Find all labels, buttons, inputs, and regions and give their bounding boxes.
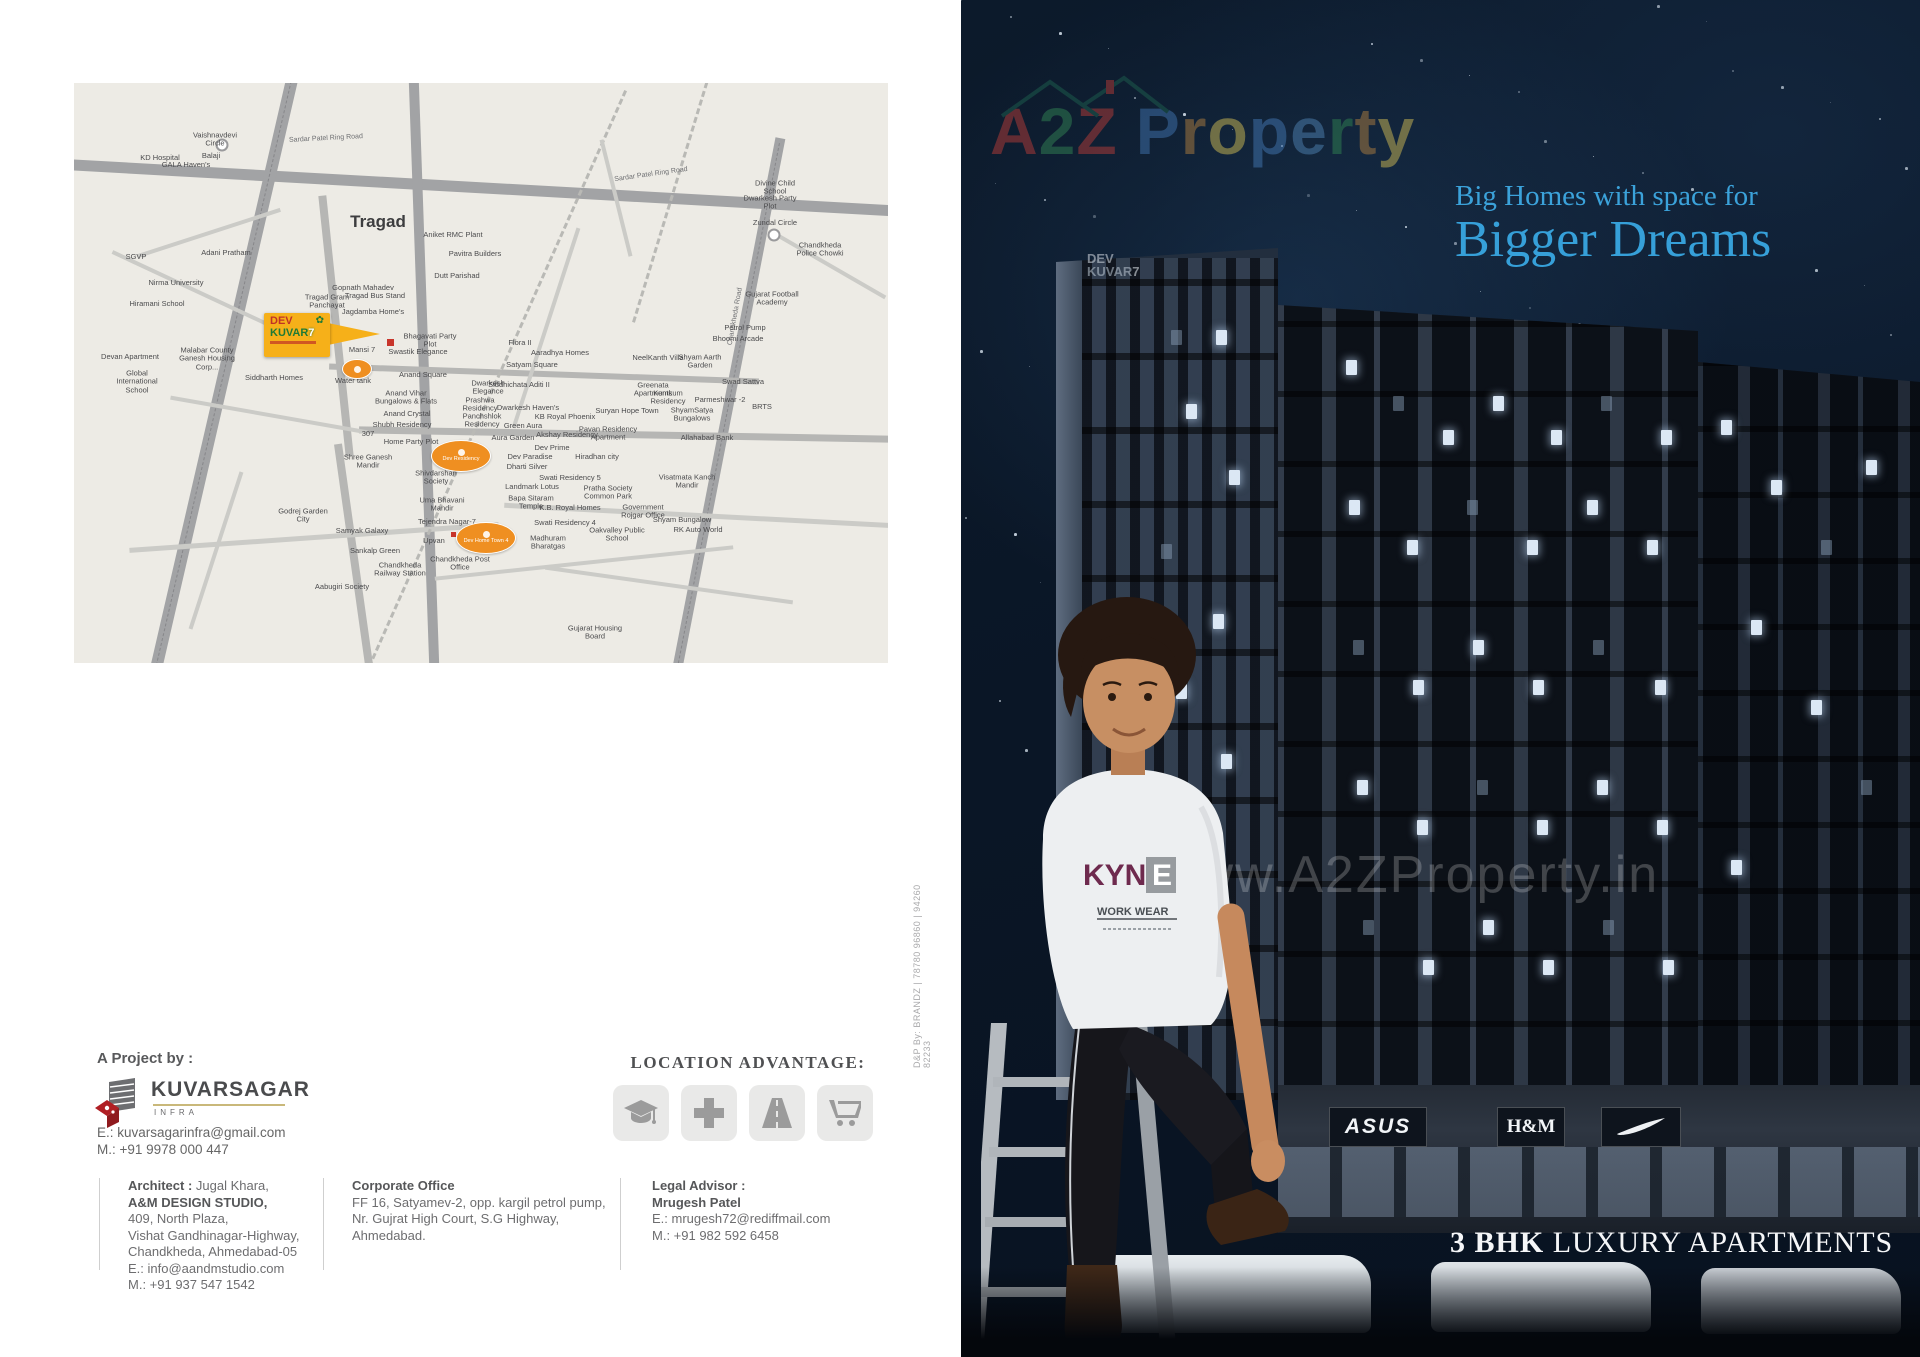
map-label: Aabugiri Society [315, 583, 369, 591]
star [1732, 70, 1734, 72]
a2z-property-logo: A2Z Property [990, 98, 1415, 164]
butterfly-icon: ✿ [316, 315, 324, 326]
map-label: Bhoomi Arcade [713, 335, 764, 343]
map-label: Aniket RMC Plant [423, 231, 482, 239]
map-label: RK Auto World [673, 526, 722, 534]
lit-window [1413, 680, 1424, 695]
lit-window [1603, 920, 1614, 935]
lit-window [1721, 420, 1732, 435]
map-label: Kumkum Residency [636, 390, 700, 407]
star [1029, 366, 1030, 367]
lit-window [1543, 960, 1554, 975]
map-label: Parmeshwar -2 [695, 396, 746, 404]
lit-window [1353, 640, 1364, 655]
lit-window [1597, 780, 1608, 795]
roof-icon [998, 72, 1218, 118]
star [1815, 269, 1818, 272]
brochure: Tragad Sardar Patel Ring Road Sardar Pat… [0, 0, 1920, 1357]
star [1093, 215, 1096, 218]
map-label: Vaishnavdevi Circle [183, 132, 247, 149]
lit-window [1537, 820, 1548, 835]
lit-window [1349, 500, 1360, 515]
apartment-tower-right [1278, 305, 1698, 1097]
svg-text:E: E [1152, 859, 1172, 892]
map-label: Hiradhan city [575, 453, 619, 461]
map-project-badge: Dev Residency [431, 440, 491, 472]
developer-brand: KUVARSAGAR INFRA [95, 1078, 310, 1128]
star [1529, 307, 1531, 309]
star [1307, 194, 1310, 197]
map-road [170, 396, 368, 435]
map-label: Visatmata Kanch Mandir [655, 474, 719, 491]
map-label: Gujarat Football Academy [740, 291, 804, 308]
location-advantage-title: LOCATION ADVANTAGE: [631, 1053, 866, 1073]
map-area-label: Tragad [350, 212, 406, 232]
lit-window [1346, 360, 1357, 375]
star [1469, 75, 1470, 76]
star [1420, 59, 1423, 62]
lit-window [1443, 430, 1454, 445]
kuvarsagar-logo-icon [95, 1078, 141, 1128]
star [1044, 199, 1046, 201]
hm-sign: H&M [1497, 1107, 1565, 1147]
brand-name: KUVARSAGAR [151, 1078, 310, 1102]
lit-window [1655, 680, 1666, 695]
project-by-heading: A Project by : [97, 1050, 193, 1067]
svg-text:KYN: KYN [1083, 859, 1146, 892]
lit-window [1216, 330, 1227, 345]
lit-window [1751, 620, 1762, 635]
apartment-type-line: 3 BHK LUXURY APARTMENTS [1450, 1226, 1893, 1260]
lit-window [1811, 700, 1822, 715]
lit-window [1161, 544, 1172, 559]
divider [99, 1178, 100, 1270]
tagline-line1: Big Homes with space for [1455, 180, 1758, 213]
map-label: Satyam Square [506, 361, 558, 369]
map-label: Adani Pratham [201, 249, 251, 257]
star [995, 183, 996, 184]
brand-subtitle: INFRA [154, 1108, 310, 1117]
star [1544, 140, 1547, 143]
map-label: Suryan Hope Town [595, 407, 658, 415]
map-label: Mansi 7 [349, 346, 375, 354]
map-label: Anand Square [399, 371, 447, 379]
ring-road-label: Sardar Patel Ring Road [289, 133, 363, 144]
storefront-glass [1278, 1147, 1920, 1217]
lit-window [1861, 780, 1872, 795]
map-label: Devan Apartment [101, 353, 159, 361]
map-label: SGVP [126, 253, 147, 261]
lit-window [1393, 396, 1404, 411]
star [1781, 86, 1784, 89]
divider [620, 1178, 621, 1270]
map-label: Nirma University [148, 279, 203, 287]
hospital-icon [681, 1085, 737, 1141]
lit-window [1493, 396, 1504, 411]
star [1864, 285, 1865, 286]
lit-window [1473, 640, 1484, 655]
map-label: Shubh Residency [373, 421, 432, 429]
map-label: Allahabad Bank [681, 434, 734, 442]
star [1518, 91, 1520, 93]
lit-window [1477, 780, 1488, 795]
map-project-badge [342, 359, 372, 379]
map-label: Anand Crystal [383, 410, 430, 418]
map-label: Pavitra Builders [449, 250, 502, 258]
map-label: Malabar County Ganesh Housing Corp... [175, 346, 239, 371]
lit-window [1731, 860, 1742, 875]
lit-window [1186, 404, 1197, 419]
lit-window [1229, 470, 1240, 485]
lit-window [1357, 780, 1368, 795]
lit-window [1771, 480, 1782, 495]
map-road [545, 566, 793, 605]
left-page: Tragad Sardar Patel Ring Road Sardar Pat… [0, 0, 961, 1357]
map-label: Zundal Circle [753, 219, 797, 227]
map-label: Balaji [202, 152, 220, 160]
map-label: Sankalp Green [350, 547, 400, 555]
lit-window [1417, 820, 1428, 835]
map-label: Aura Garden [492, 434, 535, 442]
map-label: Home Party Plot [384, 438, 439, 446]
star [1657, 5, 1660, 8]
map-label: Swastik Elegance [388, 348, 447, 356]
svg-text:WORK WEAR: WORK WEAR [1097, 906, 1169, 918]
lit-window [1483, 920, 1494, 935]
map-label: K.B. Royal Homes [539, 504, 600, 512]
map-label: Dharti Silver [507, 463, 548, 471]
map-label: ShyamSatya Bungalows [660, 407, 724, 424]
project-pointer-arrow [328, 323, 380, 345]
right-page: DEV KUVAR7 ASUS H&M A2Z [961, 0, 1920, 1357]
divider [323, 1178, 324, 1270]
lit-window [1587, 500, 1598, 515]
map-label: KB Royal Phoenix [535, 413, 595, 421]
map-label: Dwarkesh Party Plot [738, 195, 802, 212]
map-label: Shyam Bungalow [653, 516, 711, 524]
architect-block: Architect : Jugal Khara, A&M DESIGN STUD… [128, 1178, 318, 1294]
map-label: BRTS [752, 403, 772, 411]
lit-window [1593, 640, 1604, 655]
star [1890, 334, 1892, 336]
lit-window [1423, 960, 1434, 975]
map-label: Flora II [508, 339, 531, 347]
star [1371, 43, 1373, 45]
tower-brand-logo: DEV KUVAR7 [1087, 252, 1140, 278]
lit-window [1866, 460, 1877, 475]
nike-swoosh-icon [1601, 1107, 1681, 1147]
star [1405, 226, 1407, 228]
project-logo-tagline-bar [270, 341, 316, 344]
lit-window [1551, 430, 1562, 445]
map-label: Shivdarshan Society [404, 470, 468, 487]
map-label: Siddhichata Aditi II [488, 381, 550, 389]
map-label: Chandkheda Police Chowki [788, 242, 852, 259]
star [1905, 167, 1908, 170]
map-label: Samyak Galaxy [336, 527, 389, 535]
lit-window [1171, 330, 1182, 345]
map-label: Shree Ganesh Mandir [336, 454, 400, 471]
lit-window [1821, 540, 1832, 555]
legal-advisor-block: Legal Advisor : Mrugesh Patel E.: mruges… [652, 1178, 872, 1244]
star [1480, 291, 1481, 292]
lit-window [1467, 500, 1478, 515]
map-project-badge: Dev Home Town 4 [456, 522, 516, 554]
star [1108, 48, 1109, 49]
map-label: Shyam Aarth Garden [668, 354, 732, 371]
highway-icon [749, 1085, 805, 1141]
map-label: Upvan [423, 537, 445, 545]
project-site-marker [387, 339, 394, 346]
lit-window [1647, 540, 1658, 555]
star [1593, 156, 1594, 157]
map-label: Landmark Lotus [505, 483, 559, 491]
map-label: Anand Vihar Bungalows & Flats [374, 390, 438, 407]
map-label: Chandkheda Railway Station [368, 562, 432, 579]
lit-window [1363, 920, 1374, 935]
corporate-office-block: Corporate Office FF 16, Satyamev-2, opp.… [352, 1178, 612, 1244]
map-label: Petrol Pump [724, 324, 765, 332]
map-label: Swad Sattva [722, 378, 764, 386]
map-label: Global International School [105, 369, 169, 394]
map-label: Dev Paradise [507, 453, 552, 461]
star [965, 517, 967, 519]
storefront: ASUS H&M [1278, 1085, 1920, 1233]
brand-rule [153, 1104, 285, 1106]
design-credit: D&P By: BRANDZ | 78780 96860 | 94260 822… [912, 878, 932, 1068]
map-label: GALA Haven's [162, 161, 211, 169]
star [1059, 32, 1062, 35]
star [1010, 16, 1012, 18]
location-advantage-icons [613, 1085, 873, 1141]
map-label: 307 [362, 430, 375, 438]
location-map: Tragad Sardar Patel Ring Road Sardar Pat… [74, 83, 888, 663]
developer-email: E.: kuvarsagarinfra@gmail.com [97, 1125, 286, 1140]
lit-window [1527, 540, 1538, 555]
star [1879, 118, 1881, 120]
apartment-tower-wing [1698, 362, 1920, 1092]
map-label: Godrej Garden City [271, 508, 335, 525]
star [1830, 102, 1831, 103]
boy-on-ladder: KYN E WORK WEAR [981, 577, 1341, 1357]
star [1642, 172, 1644, 174]
map-label: Madhuram Bharatgas [516, 535, 580, 552]
project-map-logo: DEV KUVAR7 ✿ [264, 313, 330, 357]
lit-window [1657, 820, 1668, 835]
developer-phone: M.: +91 9978 000 447 [97, 1142, 229, 1157]
map-label: Swati Residency 4 [534, 519, 596, 527]
map-label: Hiramani School [129, 300, 184, 308]
tagline-line2: Bigger Dreams [1455, 210, 1771, 269]
star [1356, 210, 1357, 211]
map-road [512, 228, 581, 429]
map-label: Chandkheda Post Office [428, 556, 492, 573]
map-label: Oakvalley Public School [585, 527, 649, 544]
lit-window [1601, 396, 1612, 411]
lit-window [1661, 430, 1672, 445]
shopping-cart-icon [817, 1085, 873, 1141]
lit-window [1663, 960, 1674, 975]
map-label: Dutt Parishad [434, 272, 479, 280]
lit-window [1533, 680, 1544, 695]
lit-window [1407, 540, 1418, 555]
star [1706, 21, 1707, 22]
map-label: Pratha Society Common Park [576, 485, 640, 502]
map-label: Gujarat Housing Board [563, 625, 627, 642]
map-label: Jagdamba Home's [342, 308, 404, 316]
star [980, 350, 983, 353]
map-label: Aaradhya Homes [531, 349, 589, 357]
ground-shadow [961, 1267, 1920, 1357]
star [961, 0, 962, 1]
map-circle-node [768, 229, 781, 242]
project-logo-kuvar: KUVAR7 [270, 327, 330, 339]
map-label: Siddharth Homes [245, 374, 303, 382]
star [1014, 533, 1017, 536]
map-label: Pavan Residency Apartment [576, 426, 640, 443]
education-icon [613, 1085, 669, 1141]
map-label: Uma Bhavani Mandir [410, 497, 474, 514]
asus-sign: ASUS [1329, 1107, 1427, 1147]
